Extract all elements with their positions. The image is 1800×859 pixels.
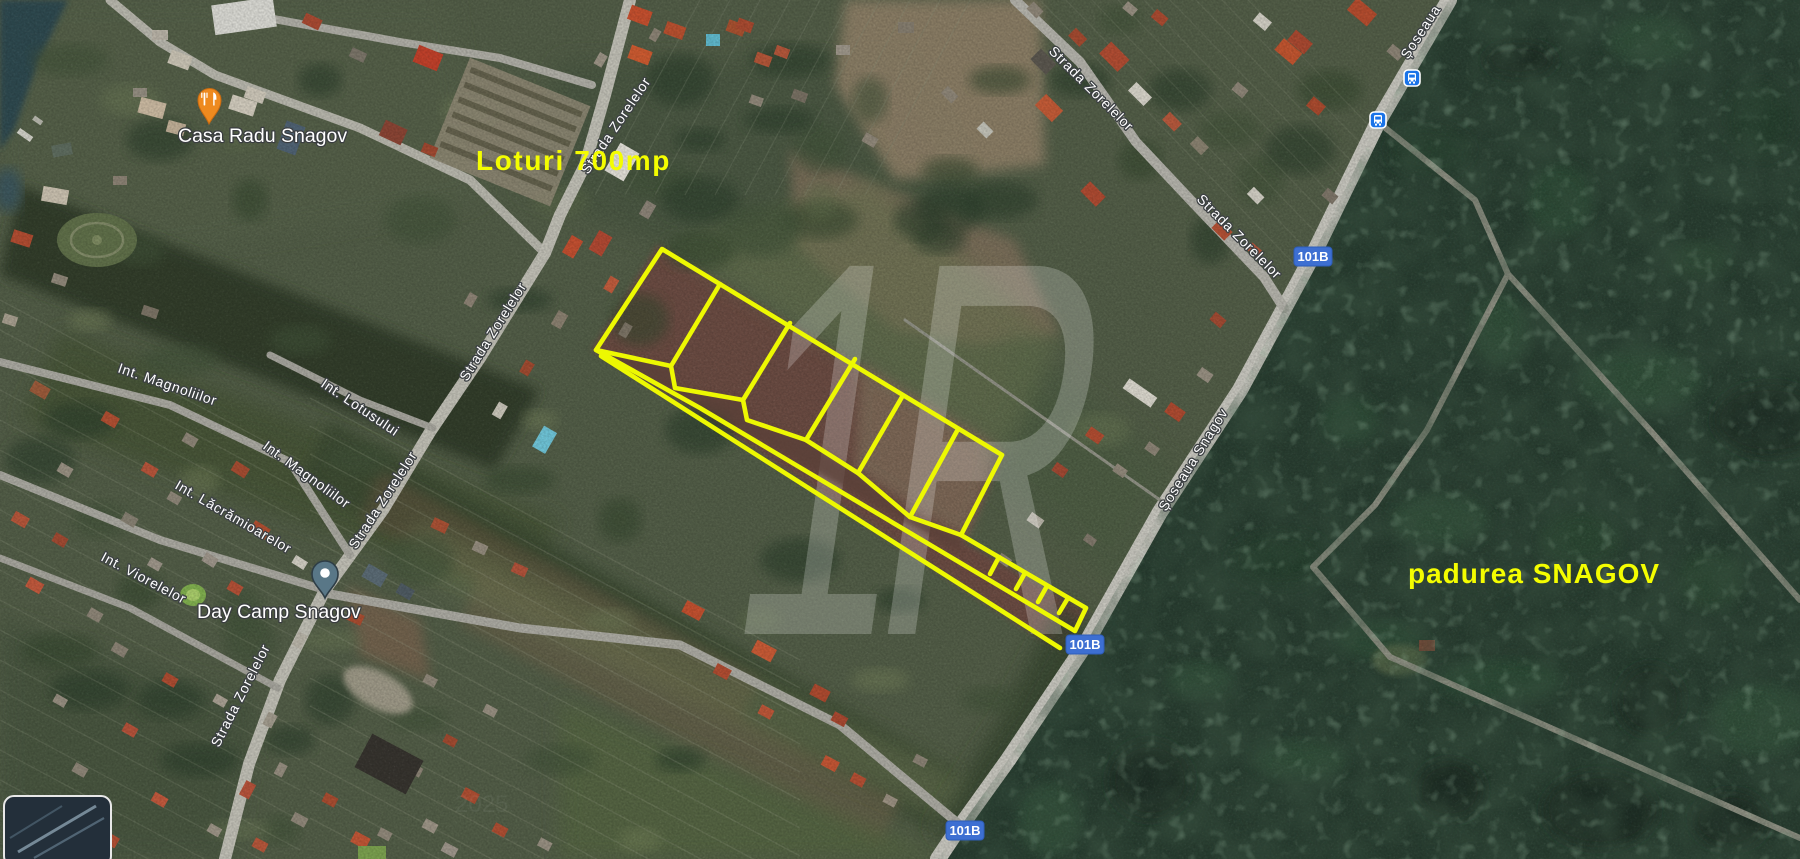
svg-text:Day Camp Snagov: Day Camp Snagov <box>197 601 361 623</box>
svg-text:101B: 101B <box>949 823 980 838</box>
svg-text:padurea SNAGOV: padurea SNAGOV <box>1408 558 1660 589</box>
svg-text:Casa Radu Snagov: Casa Radu Snagov <box>178 125 347 147</box>
svg-text:101B: 101B <box>1297 249 1328 264</box>
svg-text:2025: 2025 <box>455 791 508 818</box>
svg-text:Loturi 700mp: Loturi 700mp <box>476 145 671 176</box>
svg-text:101B: 101B <box>1069 637 1100 652</box>
